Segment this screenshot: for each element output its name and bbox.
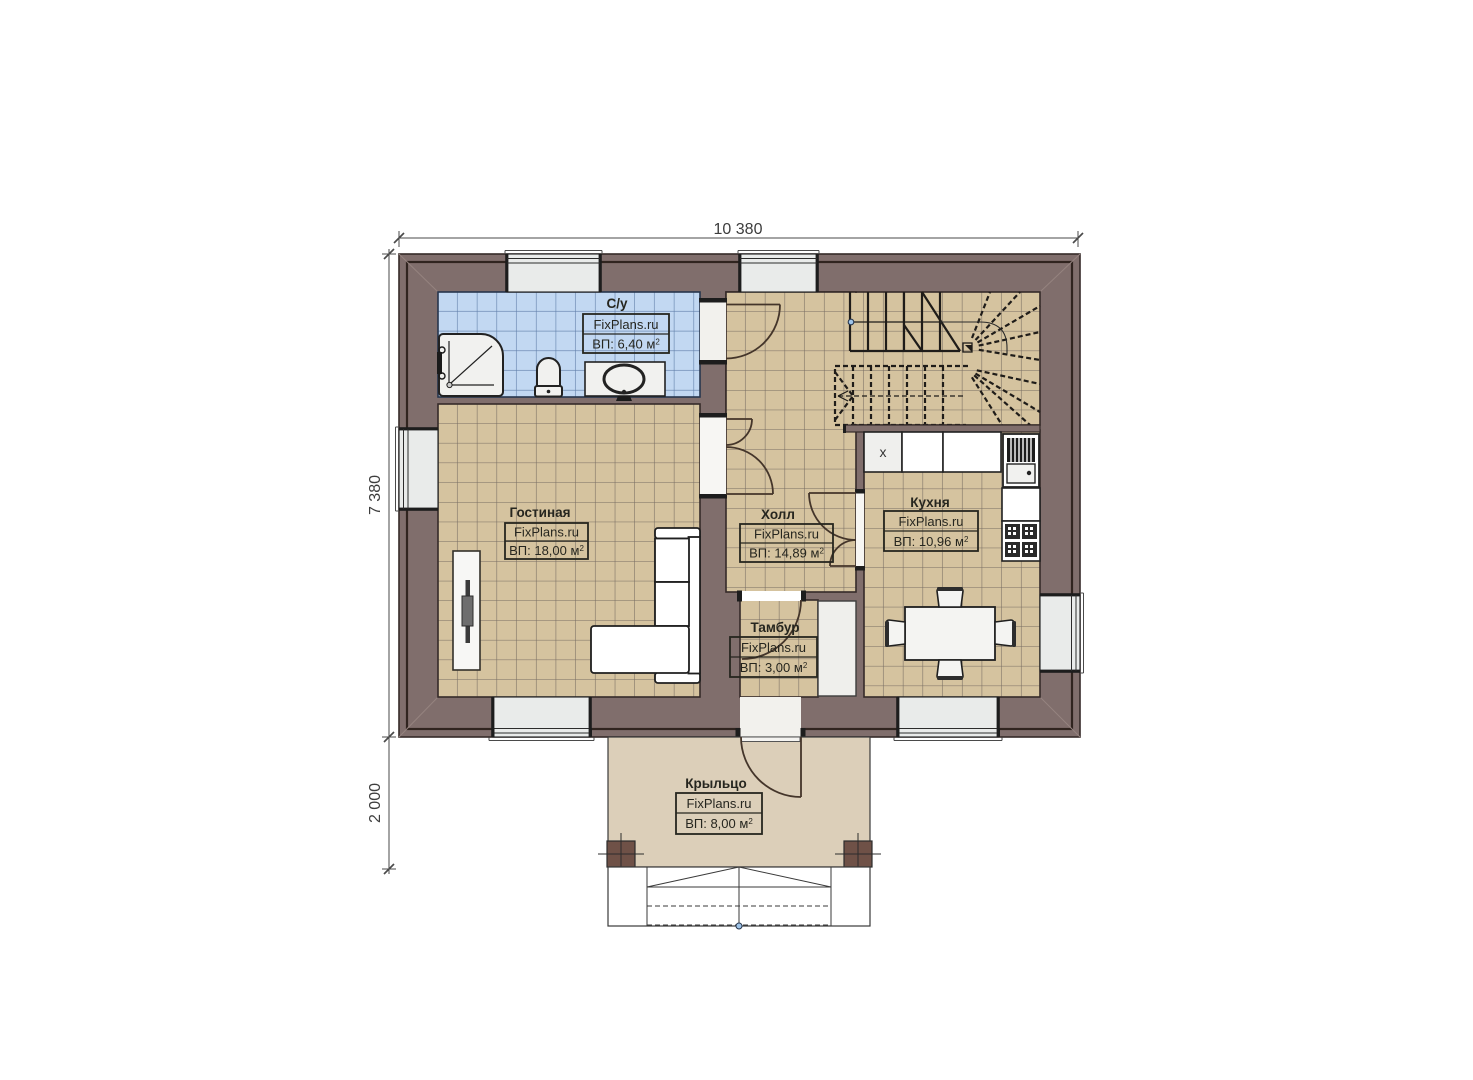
svg-text:ВП: 18,00 м2: ВП: 18,00 м2 bbox=[509, 543, 584, 558]
svg-text:FixPlans.ru: FixPlans.ru bbox=[898, 514, 963, 529]
svg-text:ВП: 3,00 м2: ВП: 3,00 м2 bbox=[740, 660, 808, 675]
svg-text:Крыльцо: Крыльцо bbox=[685, 776, 746, 791]
svg-text:FixPlans.ru: FixPlans.ru bbox=[514, 525, 579, 540]
svg-text:ВП: 14,89 м2: ВП: 14,89 м2 bbox=[749, 546, 824, 561]
svg-text:FixPlans.ru: FixPlans.ru bbox=[741, 640, 806, 655]
svg-text:2 000: 2 000 bbox=[367, 783, 384, 823]
svg-text:x: x bbox=[880, 444, 887, 460]
svg-text:FixPlans.ru: FixPlans.ru bbox=[593, 317, 658, 332]
svg-text:ВП: 8,00 м2: ВП: 8,00 м2 bbox=[685, 816, 753, 831]
svg-text:ВП: 6,40 м2: ВП: 6,40 м2 bbox=[592, 337, 660, 352]
svg-text:ВП: 10,96 м2: ВП: 10,96 м2 bbox=[894, 534, 969, 549]
svg-text:10 380: 10 380 bbox=[714, 221, 763, 238]
svg-text:7 380: 7 380 bbox=[367, 475, 384, 515]
svg-text:FixPlans.ru: FixPlans.ru bbox=[686, 796, 751, 811]
svg-text:Холл: Холл bbox=[761, 507, 795, 522]
svg-text:Кухня: Кухня bbox=[910, 495, 949, 510]
svg-text:FixPlans.ru: FixPlans.ru bbox=[754, 527, 819, 542]
svg-text:Гостиная: Гостиная bbox=[509, 505, 570, 520]
svg-text:С/у: С/у bbox=[606, 296, 628, 311]
svg-text:Тамбур: Тамбур bbox=[751, 620, 800, 635]
